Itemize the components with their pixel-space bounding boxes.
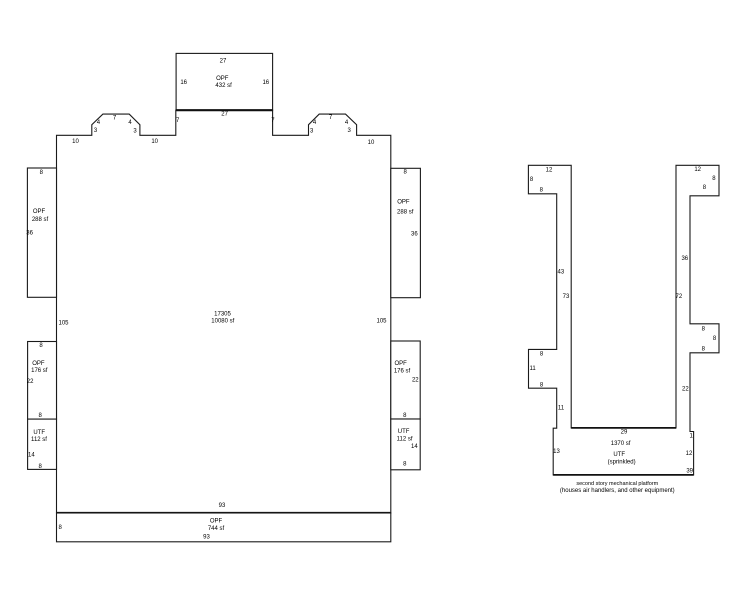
svg-text:17305: 17305 bbox=[214, 312, 231, 318]
svg-text:(houses air handlers, and othe: (houses air handlers, and other equipmen… bbox=[560, 488, 675, 494]
svg-text:112 sf: 112 sf bbox=[31, 437, 47, 443]
svg-text:39: 39 bbox=[686, 468, 693, 474]
svg-text:176 sf: 176 sf bbox=[394, 368, 411, 374]
svg-text:12: 12 bbox=[686, 451, 693, 457]
svg-text:27: 27 bbox=[220, 58, 227, 64]
svg-text:105: 105 bbox=[59, 320, 70, 326]
svg-text:10: 10 bbox=[368, 140, 375, 146]
svg-text:36: 36 bbox=[411, 231, 418, 237]
svg-text:OPF: OPF bbox=[33, 209, 46, 215]
svg-text:second story mechanical platfo: second story mechanical platform bbox=[576, 481, 658, 487]
svg-text:(sprinkled): (sprinkled) bbox=[608, 460, 636, 466]
svg-text:12: 12 bbox=[694, 167, 701, 173]
svg-text:72: 72 bbox=[676, 294, 683, 300]
svg-text:73: 73 bbox=[563, 294, 570, 300]
svg-text:OPF: OPF bbox=[395, 361, 408, 367]
svg-text:16: 16 bbox=[180, 80, 187, 86]
svg-text:29: 29 bbox=[621, 430, 628, 436]
svg-text:176 sf: 176 sf bbox=[31, 368, 48, 374]
svg-text:14: 14 bbox=[411, 444, 418, 450]
svg-text:10080 sf: 10080 sf bbox=[211, 319, 234, 325]
svg-text:744 sf: 744 sf bbox=[208, 526, 225, 532]
svg-text:10: 10 bbox=[151, 139, 158, 145]
svg-text:1370 sf: 1370 sf bbox=[611, 441, 631, 447]
svg-text:16: 16 bbox=[262, 80, 269, 86]
svg-text:105: 105 bbox=[376, 318, 387, 324]
svg-text:27: 27 bbox=[221, 112, 228, 118]
svg-text:11: 11 bbox=[529, 366, 536, 372]
svg-text:OPF: OPF bbox=[210, 519, 223, 525]
svg-text:10: 10 bbox=[72, 139, 79, 145]
svg-text:93: 93 bbox=[219, 503, 226, 509]
svg-text:93: 93 bbox=[203, 535, 210, 541]
svg-text:36: 36 bbox=[26, 231, 33, 237]
svg-text:22: 22 bbox=[412, 377, 419, 383]
svg-text:UTF: UTF bbox=[33, 430, 45, 436]
svg-text:13: 13 bbox=[553, 449, 560, 455]
svg-text:UTF: UTF bbox=[613, 452, 625, 458]
svg-text:OPF: OPF bbox=[216, 76, 229, 82]
svg-text:UTF: UTF bbox=[398, 429, 410, 435]
svg-text:OPF: OPF bbox=[397, 199, 410, 205]
svg-text:12: 12 bbox=[546, 168, 553, 174]
svg-text:288 sf: 288 sf bbox=[32, 217, 49, 223]
svg-text:43: 43 bbox=[558, 269, 565, 275]
svg-text:22: 22 bbox=[27, 379, 34, 385]
svg-text:22: 22 bbox=[682, 387, 689, 393]
svg-text:36: 36 bbox=[681, 256, 688, 262]
svg-text:14: 14 bbox=[28, 453, 35, 459]
svg-text:11: 11 bbox=[558, 406, 565, 412]
svg-text:112 sf: 112 sf bbox=[397, 437, 413, 443]
svg-text:288 sf: 288 sf bbox=[397, 210, 414, 216]
svg-text:OPF: OPF bbox=[32, 361, 45, 367]
svg-text:432 sf: 432 sf bbox=[215, 83, 232, 89]
